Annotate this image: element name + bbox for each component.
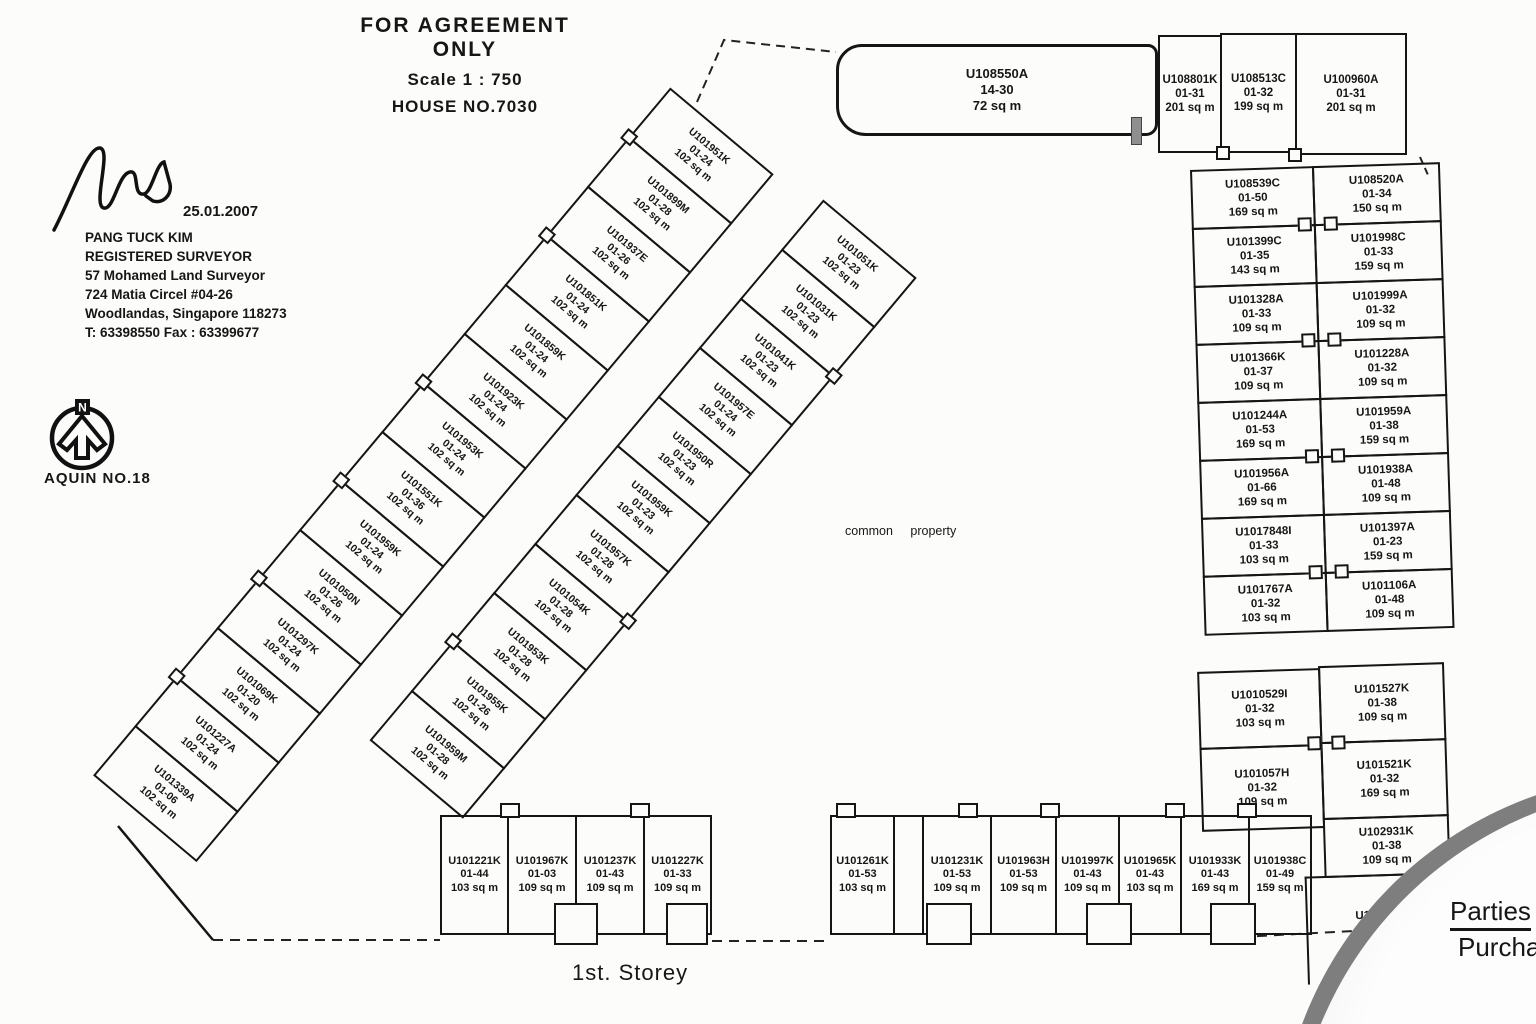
unit-no: 01-33 — [1364, 245, 1394, 260]
unit-id: U101963H — [997, 855, 1050, 869]
unit-area: 109 sq m — [1365, 606, 1415, 622]
agreement-stamp: FOR AGREEMENT ONLY — [330, 14, 600, 62]
unit-area: 109 sq m — [1232, 320, 1282, 336]
unit-u101527k: U101527K01-38109 sq m — [1318, 662, 1446, 744]
unit-id: U101997K — [1061, 855, 1114, 869]
unit-area: 109 sq m — [1362, 852, 1412, 868]
surveyor-name: PANG TUCK KIM — [85, 228, 287, 247]
north-caption: AQUIN NO.18 — [44, 470, 151, 487]
unit-area: 159 sq m — [1354, 258, 1404, 274]
unit-no: 01-35 — [1240, 249, 1270, 264]
unit-area: 150 sq m — [1352, 200, 1402, 216]
unit-no: 01-32 — [1245, 702, 1275, 717]
door-connector — [1216, 146, 1230, 160]
north-arrow-icon: N — [44, 398, 120, 474]
signature-icon — [50, 138, 200, 233]
unit-no: 01-32 — [1247, 780, 1277, 795]
unit-no: 01-38 — [1367, 696, 1397, 711]
north-arrow: N — [44, 398, 120, 479]
door-connector — [1334, 564, 1348, 578]
door-connector — [1305, 449, 1319, 463]
unit-id: U101933K — [1189, 855, 1242, 869]
unit-id: U101366K — [1230, 350, 1285, 366]
unit-no: 01-32 — [1367, 361, 1397, 376]
unit-no: 01-50 — [1238, 191, 1268, 206]
unit-u108550a: U108550A 14-30 72 sq m — [836, 44, 1158, 136]
unit-no: 01-34 — [1362, 187, 1392, 202]
entrance-porch — [926, 903, 972, 945]
unit-area: 143 sq m — [1230, 262, 1280, 278]
unit-id: U101221K — [448, 855, 501, 869]
unit-u101521k: U101521K01-32169 sq m — [1320, 738, 1448, 820]
door-connector — [1040, 803, 1060, 818]
unit-id: U100960A — [1324, 73, 1379, 87]
door-connector — [1165, 803, 1185, 818]
entrance-porch — [554, 903, 598, 945]
unit-no: 01-43 — [1136, 868, 1164, 882]
unit-id: U108550A — [966, 66, 1028, 82]
unit-no: 01-32 — [1370, 772, 1400, 787]
unit-id: U101521K — [1356, 757, 1411, 773]
unit-no: 01-37 — [1243, 364, 1273, 379]
surveyor-line1: 57 Mohamed Land Surveyor — [85, 266, 287, 285]
unit-area: 109 sq m — [1356, 316, 1406, 332]
unit-area: 103 sq m — [1241, 610, 1291, 626]
unit-u1010529i: U1010529I01-32103 sq m — [1197, 668, 1322, 750]
unit-id: U101767A — [1238, 582, 1293, 598]
unit-area: 109 sq m — [1234, 378, 1284, 394]
unit-id: U101938A — [1358, 462, 1413, 478]
unit-id: U101956A — [1234, 466, 1289, 482]
unit-id: U101227K — [651, 855, 704, 869]
common-property-label: common property — [845, 524, 956, 538]
entrance-porch — [1210, 903, 1256, 945]
unit-id: U101998C — [1351, 230, 1406, 246]
door-connector — [1308, 565, 1322, 579]
unit-area: 109 sq m — [1358, 374, 1408, 390]
title-block: FOR AGREEMENT ONLY Scale 1 : 750 HOUSE N… — [330, 14, 600, 117]
unit-id: U101999A — [1352, 288, 1407, 304]
unit-u101938c: U101938C01-49159 sq m — [1248, 815, 1312, 935]
unit-area: 169 sq m — [1360, 785, 1410, 801]
unit-no: 01-31 — [1336, 87, 1365, 101]
unit-no: 01-43 — [1201, 868, 1229, 882]
unit-area: 201 sq m — [1165, 101, 1214, 115]
unit-area: 103 sq m — [1235, 715, 1285, 731]
unit-id: U101106A — [1362, 578, 1417, 594]
unit-id: U102931K — [1359, 824, 1414, 840]
door-connector — [1327, 332, 1341, 346]
unit-no: 01-53 — [1009, 868, 1037, 882]
door-connector — [836, 803, 856, 818]
unit-no: 01-32 — [1251, 596, 1281, 611]
surveyor-signature — [50, 138, 200, 238]
surveyor-line2: 724 Matia Circel #04-26 — [85, 285, 287, 304]
unit-id: U101959A — [1356, 404, 1411, 420]
unit-id: U101399C — [1227, 234, 1282, 250]
unit-id: U101527K — [1354, 681, 1409, 697]
svg-text:N: N — [78, 401, 87, 415]
unit-u100960a: U100960A 01-31 201 sq m — [1295, 33, 1407, 155]
scale-label: Scale 1 : 750 — [330, 70, 600, 90]
unit-no: 01-48 — [1371, 477, 1401, 492]
corridor-cell — [893, 815, 924, 935]
unit-no: 01-66 — [1247, 480, 1277, 495]
unit-id: U101938C — [1254, 855, 1307, 869]
unit-area: 103 sq m — [1239, 552, 1289, 568]
right-unit-block: U108539C01-50169 sq m U108520A01-34150 s… — [1190, 162, 1455, 636]
unit-id: U101965K — [1124, 855, 1177, 869]
door-connector — [958, 803, 978, 818]
unit-id: U101237K — [584, 855, 637, 869]
unit-u101399c: U101399C01-35143 sq m — [1192, 224, 1318, 288]
unit-id: U108520A — [1349, 172, 1404, 188]
unit-no: 01-03 — [528, 868, 556, 882]
unit-id: U101244A — [1232, 408, 1287, 424]
unit-area: 159 sq m — [1360, 432, 1410, 448]
unit-u101261k: U101261K01-53103 sq m — [830, 815, 895, 935]
surveyor-phone: T: 63398550 Fax : 63399677 — [85, 323, 287, 342]
signature-date: 25.01.2007 — [183, 203, 258, 220]
unit-no: 01-32 — [1244, 86, 1273, 100]
unit-u108513c: U108513C 01-32 199 sq m — [1220, 33, 1297, 153]
unit-no: 01-32 — [1366, 303, 1396, 318]
unit-area: 103 sq m — [839, 882, 886, 896]
unit-area: 169 sq m — [1236, 436, 1286, 452]
unit-u101221k: U101221K01-44103 sq m — [440, 815, 509, 935]
unit-area: 103 sq m — [1126, 882, 1173, 896]
unit-id: U101057H — [1234, 766, 1289, 782]
surveyor-role: REGISTERED SURVEYOR — [85, 247, 287, 266]
door-connector — [1331, 735, 1345, 749]
unit-id: U101967K — [516, 855, 569, 869]
unit-area: 109 sq m — [654, 882, 701, 896]
unit-no: 01-33 — [1242, 307, 1272, 322]
unit-id: U1017848I — [1235, 524, 1292, 540]
unit-area: 109 sq m — [1362, 490, 1412, 506]
unit-area: 72 sq m — [973, 98, 1021, 114]
surveyor-block: PANG TUCK KIM REGISTERED SURVEYOR 57 Moh… — [85, 228, 287, 342]
unit-id: U101397A — [1360, 520, 1415, 536]
door-connector — [1298, 217, 1312, 231]
door-connector — [500, 803, 520, 818]
unit-area: 169 sq m — [1238, 494, 1288, 510]
unit-area: 109 sq m — [518, 882, 565, 896]
entrance-porch — [666, 903, 708, 945]
unit-u108801k: U108801K 01-31 201 sq m — [1158, 35, 1222, 153]
unit-area: 201 sq m — [1326, 101, 1375, 115]
unit-no: 01-53 — [943, 868, 971, 882]
parties-text: Parties — [1450, 896, 1531, 931]
unit-area: 159 sq m — [1256, 882, 1303, 896]
unit-no: 01-33 — [1249, 538, 1279, 553]
unit-area: 109 sq m — [586, 882, 633, 896]
unit-no: 01-38 — [1372, 839, 1402, 854]
scanned-survey-plan-page: FOR AGREEMENT ONLY Scale 1 : 750 HOUSE N… — [0, 0, 1536, 1024]
storey-label: 1st. Storey — [572, 960, 688, 986]
entrance-porch — [1086, 903, 1132, 945]
unit-area: 109 sq m — [1064, 882, 1111, 896]
unit-area: 109 sq m — [1000, 882, 1047, 896]
unit-no: 01-33 — [663, 868, 691, 882]
unit-area: 159 sq m — [1363, 548, 1413, 564]
unit-id: U108801K — [1163, 73, 1218, 87]
unit-u101956a: U101956A01-66169 sq m — [1199, 456, 1325, 520]
door-connector — [1237, 803, 1257, 818]
door-connector — [1324, 216, 1338, 230]
riser-shaft — [1131, 117, 1142, 145]
unit-id: U101328A — [1228, 292, 1283, 308]
unit-area: 169 sq m — [1229, 204, 1279, 220]
unit-no: 01-44 — [460, 868, 488, 882]
unit-area: 199 sq m — [1234, 100, 1283, 114]
door-connector — [1288, 148, 1302, 162]
house-number-label: HOUSE NO.7030 — [330, 97, 600, 117]
door-connector — [630, 803, 650, 818]
purchase-text: Purcha — [1458, 932, 1536, 963]
unit-no: 14-30 — [980, 82, 1013, 98]
unit-area: 169 sq m — [1191, 882, 1238, 896]
unit-no: 01-31 — [1175, 87, 1204, 101]
unit-id: U101261K — [836, 855, 889, 869]
unit-no: 01-48 — [1375, 592, 1405, 607]
unit-id: U108539C — [1225, 176, 1280, 192]
door-connector — [1307, 736, 1321, 750]
unit-no: 01-43 — [1073, 868, 1101, 882]
unit-no: 01-43 — [596, 868, 624, 882]
door-connector — [1301, 333, 1315, 347]
door-connector — [1331, 448, 1345, 462]
unit-no: 01-23 — [1373, 535, 1403, 550]
unit-area: 109 sq m — [933, 882, 980, 896]
surveyor-line3: Woodlandas, Singapore 118273 — [85, 304, 287, 323]
unit-id: U101228A — [1354, 346, 1409, 362]
unit-no: 01-53 — [1245, 422, 1275, 437]
unit-id: U101231K — [931, 855, 984, 869]
unit-area: 109 sq m — [1358, 709, 1408, 725]
unit-u101366k: U101366K01-37109 sq m — [1195, 340, 1321, 404]
unit-area: 103 sq m — [451, 882, 498, 896]
unit-id: U1010529I — [1231, 687, 1288, 703]
unit-u101767a: U101767A01-32103 sq m — [1203, 572, 1329, 636]
unit-no: 01-38 — [1369, 419, 1399, 434]
unit-no: 01-53 — [848, 868, 876, 882]
unit-no: 01-49 — [1266, 868, 1294, 882]
unit-u101963h: U101963H01-53109 sq m — [990, 815, 1057, 935]
unit-id: U108513C — [1231, 72, 1286, 86]
